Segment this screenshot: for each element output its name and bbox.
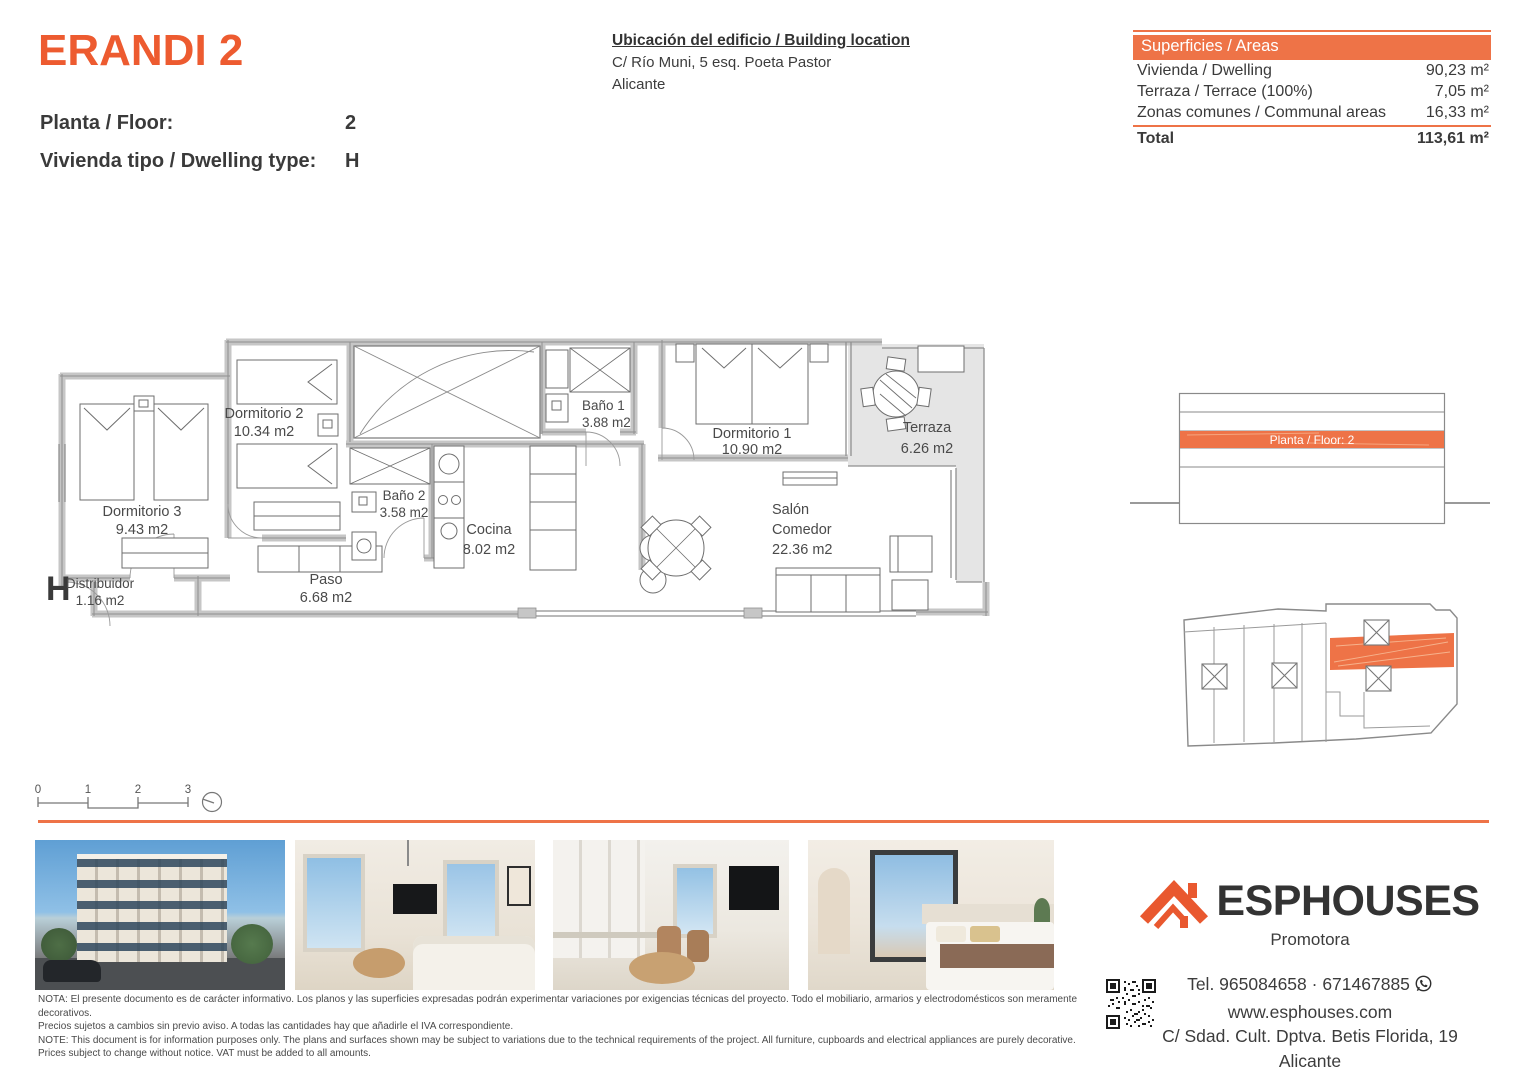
- room-area: 6.26 m2: [901, 441, 953, 457]
- room-area: 9.43 m2: [116, 522, 168, 538]
- section-outline: [1180, 394, 1445, 524]
- note-line: NOTA: El presente documento es de caráct…: [38, 993, 1078, 1020]
- dwelling-type-value: H: [345, 150, 359, 173]
- room-name: Distribuidor: [66, 576, 135, 591]
- floor-value: 2: [345, 112, 356, 135]
- footer-divider: [38, 820, 1489, 823]
- brand-logo: ESPHOUSES: [1120, 874, 1500, 928]
- building-location-title: Ubicación del edificio / Building locati…: [612, 30, 1052, 52]
- room-area: 10.90 m2: [722, 442, 782, 458]
- lightwell: [354, 346, 540, 438]
- photo-bedroom: [808, 840, 1054, 990]
- floor-plan: H Dormitorio 3 9.43 m2 Dormitorio 2 10.3…: [30, 332, 1040, 640]
- room-area: 3.88 m2: [582, 415, 631, 430]
- room-name: Terraza: [903, 420, 952, 436]
- areas-row-terrace: Terraza / Terrace (100%) 7,05 m²: [1133, 81, 1491, 102]
- areas-row-value: 90,23 m²: [1426, 62, 1489, 80]
- areas-total-label: Total: [1137, 130, 1174, 148]
- scale-tick: 0: [35, 784, 41, 796]
- brand-address: C/ Sdad. Cult. Dptva. Betis Florida, 19: [1120, 1024, 1500, 1049]
- areas-row-label: Terraza / Terrace (100%): [1137, 83, 1313, 101]
- room-name: Cocina: [466, 522, 512, 538]
- room-area: 8.02 m2: [463, 542, 515, 558]
- building-section-diagram: Planta / Floor: 2: [1179, 393, 1445, 524]
- room-name: Dormitorio 3: [103, 504, 182, 520]
- dwelling-type-label: Vivienda tipo / Dwelling type:: [40, 150, 345, 173]
- areas-total-value: 113,61 m²: [1417, 130, 1489, 148]
- floor-row: Planta / Floor: 2: [40, 112, 460, 135]
- whatsapp-icon: [1414, 974, 1433, 993]
- areas-table: Superficies / Areas Vivienda / Dwelling …: [1133, 30, 1491, 148]
- scale-tick: 2: [135, 784, 141, 796]
- building-location-block: Ubicación del edificio / Building locati…: [612, 30, 1052, 96]
- note-line: Precios sujetos a cambios sin previo avi…: [38, 1020, 1078, 1034]
- room-name: Paso: [309, 572, 342, 588]
- brand-subtitle: Promotora: [1120, 930, 1500, 950]
- room-name: Comedor: [772, 522, 832, 538]
- areas-row-dwelling: Vivienda / Dwelling 90,23 m²: [1133, 60, 1491, 81]
- site-key-plan: [1178, 596, 1463, 756]
- brand-website[interactable]: www.esphouses.com: [1120, 1000, 1500, 1025]
- areas-row-communal: Zonas comunes / Communal areas 16,33 m²: [1133, 102, 1491, 123]
- building-location-address: C/ Río Muni, 5 esq. Poeta Pastor: [612, 52, 1052, 74]
- room-area: 3.58 m2: [380, 505, 429, 520]
- note-line: Prices subject to change without notice.…: [38, 1047, 1078, 1061]
- disclaimer-notes: NOTA: El presente documento es de caráct…: [38, 993, 1078, 1061]
- page-title: ERANDI 2: [38, 26, 243, 76]
- floor-label: Planta / Floor:: [40, 112, 345, 135]
- areas-top-rule: [1133, 30, 1491, 32]
- room-name: Baño 2: [383, 488, 426, 503]
- photo-living-room: [295, 840, 535, 990]
- brand-phone: Tel. 965084658 · 671467885: [1120, 972, 1500, 1000]
- note-line: NOTE: This document is for information p…: [38, 1034, 1078, 1048]
- brand-city: Alicante: [1120, 1049, 1500, 1074]
- room-area: 6.68 m2: [300, 590, 352, 606]
- north-compass-icon: [203, 793, 222, 812]
- scale-ticks: 0 1 2 3: [35, 784, 191, 796]
- scale-tick: 3: [185, 784, 191, 796]
- scale-bar: 0 1 2 3: [30, 780, 260, 824]
- building-location-city: Alicante: [612, 74, 1052, 96]
- esphouses-house-icon: [1140, 874, 1212, 928]
- section-floor-label: Planta / Floor: 2: [1270, 433, 1355, 447]
- brand-block: ESPHOUSES Promotora Tel. 965084658 · 671…: [1120, 874, 1500, 1073]
- areas-header: Superficies / Areas: [1133, 35, 1491, 60]
- room-area: 1.16 m2: [76, 593, 125, 608]
- areas-row-label: Zonas comunes / Communal areas: [1137, 104, 1386, 122]
- brand-name: ESPHOUSES: [1216, 877, 1479, 926]
- photo-kitchen: [553, 840, 789, 990]
- room-name: Dormitorio 2: [225, 406, 304, 422]
- areas-row-label: Vivienda / Dwelling: [1137, 62, 1272, 80]
- areas-row-value: 16,33 m²: [1426, 104, 1489, 122]
- room-name: Salón: [772, 502, 809, 518]
- room-name: Baño 1: [582, 398, 625, 413]
- areas-row-value: 7,05 m²: [1435, 83, 1489, 101]
- scale-line: [38, 797, 188, 808]
- scale-tick: 1: [85, 784, 91, 796]
- areas-total-row: Total 113,61 m²: [1133, 127, 1491, 148]
- brochure-page: ERANDI 2 Planta / Floor: 2 Vivienda tipo…: [0, 0, 1527, 1080]
- room-name: Dormitorio 1: [713, 426, 792, 442]
- room-area: 10.34 m2: [234, 424, 294, 440]
- room-area: 22.36 m2: [772, 542, 832, 558]
- photo-building-exterior: [35, 840, 285, 990]
- dwelling-type-row: Vivienda tipo / Dwelling type: H: [40, 150, 460, 173]
